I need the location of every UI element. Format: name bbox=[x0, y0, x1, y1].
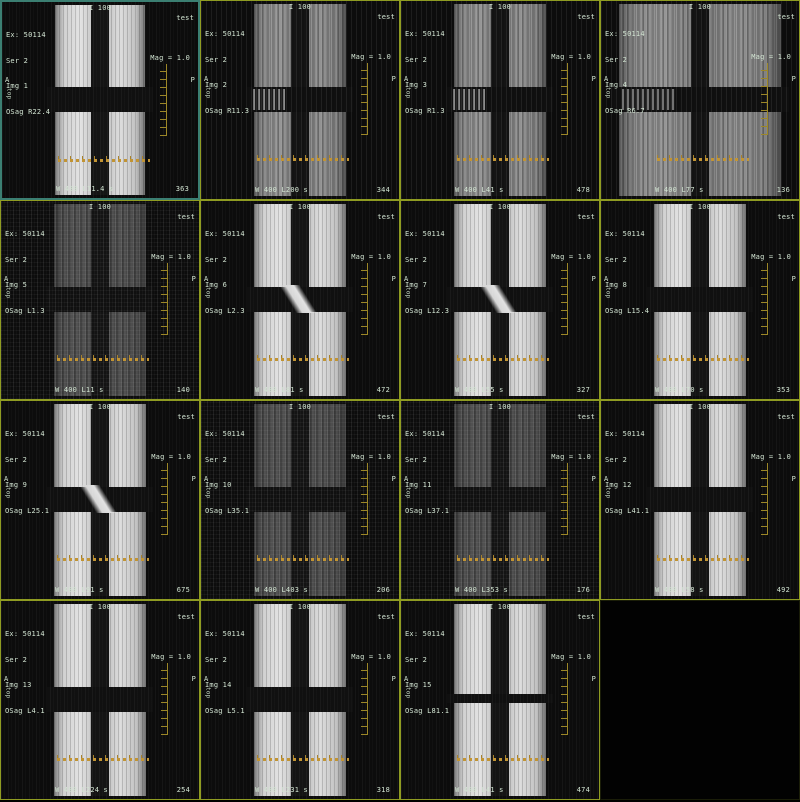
magnification-label: Mag = 1.0 bbox=[551, 453, 591, 462]
magnification-label: Mag = 1.0 bbox=[551, 253, 591, 262]
level-value-label: 363 bbox=[176, 185, 189, 194]
mri-panel[interactable]: Ex: 50114 Ser 2 Img 11 OSag L37.1 I 100 … bbox=[400, 400, 600, 600]
exam-info-block: Ex: 50114 Ser 2 Img 14 OSag L5.1 bbox=[205, 613, 245, 732]
level-value-label: 140 bbox=[177, 386, 190, 395]
magnification-label: Mag = 1.0 bbox=[151, 453, 191, 462]
vertical-ruler bbox=[761, 63, 768, 135]
image-number: Img 1 bbox=[6, 82, 50, 91]
series-number: Ser 2 bbox=[6, 57, 50, 66]
level-value-label: 474 bbox=[577, 786, 590, 795]
table-position-label: I 100 bbox=[689, 3, 711, 12]
magnification-label: Mag = 1.0 bbox=[751, 453, 791, 462]
vertical-ruler bbox=[160, 64, 167, 136]
exam-info-block: Ex: 50114 Ser 2 Img 9 OSag L25.1 bbox=[5, 413, 49, 532]
exam-info-block: Ex: 50114 Ser 2 Img 1 OSag R22.4 bbox=[6, 14, 50, 133]
level-value-label: 478 bbox=[577, 186, 590, 195]
mri-panel[interactable]: Ex: 50114 Ser 2 Img 4 OSag R6.7 I 100 te… bbox=[600, 0, 800, 200]
orientation-left-sub-label: top bbox=[203, 87, 212, 98]
level-value-label: 136 bbox=[777, 186, 790, 195]
exam-number: Ex: 50114 bbox=[205, 630, 245, 639]
orientation-left-marker: A bbox=[604, 475, 608, 484]
orientation-right-marker: P bbox=[192, 675, 196, 684]
horizontal-ruler bbox=[58, 159, 150, 162]
image-number: Img 2 bbox=[205, 81, 249, 90]
series-number: Ser 2 bbox=[205, 456, 249, 465]
table-position-label: I 100 bbox=[289, 603, 311, 612]
orientation-right-marker: P bbox=[392, 675, 396, 684]
orientation-left-marker: A bbox=[204, 275, 208, 284]
magnification-label: Mag = 1.0 bbox=[151, 253, 191, 262]
horizontal-ruler bbox=[257, 158, 349, 161]
slice-location: OSag L81.1 bbox=[405, 707, 449, 716]
orientation-right-marker: P bbox=[392, 275, 396, 284]
orientation-right-marker: P bbox=[592, 75, 596, 84]
slice-location: OSag L15.4 bbox=[605, 307, 649, 316]
orientation-left-sub-label: top bbox=[3, 487, 12, 498]
mri-panel[interactable]: Ex: 50114 Ser 2 Img 1 OSag R22.4 I 100 t… bbox=[0, 0, 200, 200]
mri-panel[interactable]: Ex: 50114 Ser 2 Img 7 OSag L12.3 I 100 t… bbox=[400, 200, 600, 400]
level-value-label: 176 bbox=[577, 586, 590, 595]
orientation-right-marker: P bbox=[592, 475, 596, 484]
orientation-right-marker: P bbox=[191, 76, 195, 85]
magnification-label: Mag = 1.0 bbox=[151, 653, 191, 662]
orientation-right-marker: P bbox=[192, 475, 196, 484]
orientation-right-marker: P bbox=[792, 275, 796, 284]
exam-number: Ex: 50114 bbox=[5, 230, 45, 239]
vertical-ruler bbox=[361, 463, 368, 535]
orientation-left-marker: A bbox=[5, 76, 9, 85]
image-number: Img 9 bbox=[5, 481, 49, 490]
orientation-right-marker: P bbox=[792, 475, 796, 484]
orientation-left-sub-label: top bbox=[603, 287, 612, 298]
window-level-label: W 400 L41 s bbox=[455, 186, 504, 195]
orientation-left-marker: A bbox=[604, 75, 608, 84]
mri-panel[interactable]: Ex: 50114 Ser 2 Img 10 OSag L35.1 I 100 … bbox=[200, 400, 400, 600]
vertical-ruler bbox=[761, 263, 768, 335]
horizontal-ruler bbox=[57, 758, 149, 761]
exam-number: Ex: 50114 bbox=[5, 430, 49, 439]
image-number: Img 8 bbox=[605, 281, 649, 290]
orientation-left-marker: A bbox=[204, 75, 208, 84]
image-number: Img 12 bbox=[605, 481, 649, 490]
image-number: Img 10 bbox=[205, 481, 249, 490]
exam-number: Ex: 50114 bbox=[605, 230, 649, 239]
level-value-label: 353 bbox=[777, 386, 790, 395]
horizontal-ruler bbox=[657, 158, 749, 161]
magnification-label: Mag = 1.0 bbox=[551, 653, 591, 662]
horizontal-ruler bbox=[57, 558, 149, 561]
mri-panel[interactable]: Ex: 50114 Ser 2 Img 3 OSag R1.3 I 100 te… bbox=[400, 0, 600, 200]
exam-number: Ex: 50114 bbox=[5, 630, 45, 639]
exam-number: Ex: 50114 bbox=[405, 430, 449, 439]
window-level-label: W 400 L41 s bbox=[455, 786, 504, 795]
patient-name-label: test bbox=[377, 613, 395, 622]
level-value-label: 206 bbox=[377, 586, 390, 595]
series-number: Ser 2 bbox=[405, 456, 449, 465]
slice-location: OSag L37.1 bbox=[405, 507, 449, 516]
vertical-ruler bbox=[561, 63, 568, 135]
exam-info-block: Ex: 50114 Ser 2 Img 3 OSag R1.3 bbox=[405, 13, 445, 132]
level-value-label: 675 bbox=[177, 586, 190, 595]
series-number: Ser 2 bbox=[405, 656, 449, 665]
orientation-left-marker: A bbox=[4, 675, 8, 684]
horizontal-ruler bbox=[657, 558, 749, 561]
slice-location: OSag L5.1 bbox=[205, 707, 245, 716]
magnification-label: Mag = 1.0 bbox=[150, 54, 190, 63]
window-level-label: W 400 L11 s bbox=[55, 386, 104, 395]
slice-location: OSag R22.4 bbox=[6, 108, 50, 117]
exam-info-block: Ex: 50114 Ser 2 Img 2 OSag R11.3 bbox=[205, 13, 249, 132]
patient-name-label: test bbox=[577, 213, 595, 222]
window-level-label: W 400 L231 s bbox=[255, 786, 308, 795]
slice-location: OSag L2.3 bbox=[205, 307, 245, 316]
mri-panel[interactable]: Ex: 50114 Ser 2 Img 6 OSag L2.3 I 100 te… bbox=[200, 200, 400, 400]
magnification-label: Mag = 1.0 bbox=[351, 453, 391, 462]
series-number: Ser 2 bbox=[5, 656, 45, 665]
window-level-label: W 400 L224 s bbox=[55, 786, 108, 795]
orientation-right-marker: P bbox=[592, 675, 596, 684]
series-number: Ser 2 bbox=[5, 256, 45, 265]
exam-info-block: Ex: 50114 Ser 2 Img 6 OSag L2.3 bbox=[205, 213, 245, 332]
series-number: Ser 2 bbox=[5, 456, 49, 465]
orientation-right-marker: P bbox=[192, 275, 196, 284]
table-position-label: I 100 bbox=[89, 403, 111, 412]
exam-info-block: Ex: 50114 Ser 2 Img 12 OSag L41.1 bbox=[605, 413, 649, 532]
table-position-label: I 100 bbox=[489, 203, 511, 212]
exam-number: Ex: 50114 bbox=[605, 430, 649, 439]
orientation-left-sub-label: top bbox=[603, 87, 612, 98]
slice-location: OSag L35.1 bbox=[205, 507, 249, 516]
horizontal-ruler bbox=[457, 758, 549, 761]
vertical-ruler bbox=[161, 663, 168, 735]
window-level-label: W 400 L70 s bbox=[655, 386, 704, 395]
patient-name-label: test bbox=[577, 13, 595, 22]
exam-info-block: Ex: 50114 Ser 2 Img 4 OSag R6.7 bbox=[605, 13, 645, 132]
vertical-ruler bbox=[161, 463, 168, 535]
vertical-ruler bbox=[561, 463, 568, 535]
mri-panel[interactable]: Ex: 50114 Ser 2 Img 15 OSag L81.1 I 100 … bbox=[400, 600, 600, 800]
orientation-right-marker: P bbox=[392, 475, 396, 484]
orientation-left-sub-label: top bbox=[603, 487, 612, 498]
table-position-label: I 100 bbox=[289, 3, 311, 12]
orientation-left-sub-label: top bbox=[3, 687, 12, 698]
image-number: Img 15 bbox=[405, 681, 449, 690]
level-value-label: 327 bbox=[577, 386, 590, 395]
magnification-label: Mag = 1.0 bbox=[751, 253, 791, 262]
exam-info-block: Ex: 50114 Ser 2 Img 13 OSag L4.1 bbox=[5, 613, 45, 732]
table-position-label: I 100 bbox=[689, 203, 711, 212]
empty-cell bbox=[600, 600, 800, 800]
slice-location: OSag L12.3 bbox=[405, 307, 449, 316]
exam-number: Ex: 50114 bbox=[205, 230, 245, 239]
exam-info-block: Ex: 50114 Ser 2 Img 8 OSag L15.4 bbox=[605, 213, 649, 332]
slice-location: OSag R11.3 bbox=[205, 107, 249, 116]
patient-name-label: test bbox=[777, 213, 795, 222]
horizontal-ruler bbox=[57, 358, 149, 361]
image-number: Img 11 bbox=[405, 481, 449, 490]
orientation-left-marker: A bbox=[404, 275, 408, 284]
magnification-label: Mag = 1.0 bbox=[351, 253, 391, 262]
vertical-ruler bbox=[161, 263, 168, 335]
window-level-label: W 400 L55 s bbox=[455, 386, 504, 395]
orientation-left-sub-label: top bbox=[203, 287, 212, 298]
orientation-left-sub-label: top bbox=[3, 287, 12, 298]
exam-info-block: Ex: 50114 Ser 2 Img 7 OSag L12.3 bbox=[405, 213, 449, 332]
table-position-label: I 100 bbox=[289, 403, 311, 412]
orientation-left-marker: A bbox=[204, 675, 208, 684]
slice-location: OSag R1.3 bbox=[405, 107, 445, 116]
exam-number: Ex: 50114 bbox=[205, 30, 249, 39]
level-value-label: 254 bbox=[177, 786, 190, 795]
slice-location: OSag L25.1 bbox=[5, 507, 49, 516]
window-level-label: W 400 L200 s bbox=[255, 186, 308, 195]
series-number: Ser 2 bbox=[605, 256, 649, 265]
orientation-left-marker: A bbox=[604, 275, 608, 284]
exam-info-block: Ex: 50114 Ser 2 Img 5 OSag L1.3 bbox=[5, 213, 45, 332]
level-value-label: 492 bbox=[777, 586, 790, 595]
series-number: Ser 2 bbox=[605, 456, 649, 465]
patient-name-label: test bbox=[777, 413, 795, 422]
mri-panel[interactable]: Ex: 50114 Ser 2 Img 5 OSag L1.3 I 100 te… bbox=[0, 200, 200, 400]
series-number: Ser 2 bbox=[405, 256, 449, 265]
window-level-label: W 400 L11.4 s bbox=[56, 185, 113, 194]
table-position-label: I 100 bbox=[489, 603, 511, 612]
patient-name-label: test bbox=[176, 14, 194, 23]
patient-name-label: test bbox=[177, 413, 195, 422]
orientation-right-marker: P bbox=[792, 75, 796, 84]
mri-panel[interactable]: Ex: 50114 Ser 2 Img 9 OSag L25.1 I 100 t… bbox=[0, 400, 200, 600]
horizontal-ruler bbox=[457, 558, 549, 561]
level-value-label: 344 bbox=[377, 186, 390, 195]
horizontal-ruler bbox=[257, 358, 349, 361]
image-grid: Ex: 50114 Ser 2 Img 1 OSag R22.4 I 100 t… bbox=[0, 0, 800, 800]
magnification-label: Mag = 1.0 bbox=[351, 653, 391, 662]
orientation-left-sub-label: top bbox=[403, 287, 412, 298]
slice-location: OSag L1.3 bbox=[5, 307, 45, 316]
table-position-label: I 100 bbox=[289, 203, 311, 212]
image-number: Img 7 bbox=[405, 281, 449, 290]
table-position-label: I 100 bbox=[489, 403, 511, 412]
window-level-label: W 400 L403 s bbox=[255, 586, 308, 595]
orientation-left-marker: A bbox=[404, 75, 408, 84]
slice-location: OSag R6.7 bbox=[605, 107, 645, 116]
orientation-left-sub-label: top bbox=[203, 487, 212, 498]
patient-name-label: test bbox=[377, 413, 395, 422]
window-level-label: W 400 L58 s bbox=[655, 586, 704, 595]
orientation-left-marker: A bbox=[404, 475, 408, 484]
window-level-label: W 400 L77 s bbox=[655, 186, 704, 195]
series-number: Ser 2 bbox=[205, 256, 245, 265]
level-value-label: 318 bbox=[377, 786, 390, 795]
horizontal-ruler bbox=[657, 358, 749, 361]
vertical-ruler bbox=[361, 63, 368, 135]
vertical-ruler bbox=[561, 663, 568, 735]
exam-number: Ex: 50114 bbox=[405, 30, 445, 39]
orientation-left-marker: A bbox=[4, 275, 8, 284]
mri-panel[interactable]: Ex: 50114 Ser 2 Img 8 OSag L15.4 I 100 t… bbox=[600, 200, 800, 400]
orientation-left-marker: A bbox=[204, 475, 208, 484]
orientation-left-marker: A bbox=[404, 675, 408, 684]
orientation-left-sub-label: top bbox=[403, 487, 412, 498]
slice-location: OSag L4.1 bbox=[5, 707, 45, 716]
vertical-ruler bbox=[761, 463, 768, 535]
slice-location: OSag L41.1 bbox=[605, 507, 649, 516]
magnification-label: Mag = 1.0 bbox=[551, 53, 591, 62]
window-level-label: W 400 L91 s bbox=[55, 586, 104, 595]
mri-panel[interactable]: Ex: 50114 Ser 2 Img 14 OSag L5.1 I 100 t… bbox=[200, 600, 400, 800]
mri-panel[interactable]: Ex: 50114 Ser 2 Img 2 OSag R11.3 I 100 t… bbox=[200, 0, 400, 200]
series-number: Ser 2 bbox=[205, 656, 245, 665]
patient-name-label: test bbox=[577, 613, 595, 622]
patient-name-label: test bbox=[777, 13, 795, 22]
table-position-label: I 100 bbox=[89, 4, 111, 13]
orientation-left-sub-label: top bbox=[403, 687, 412, 698]
level-value-label: 472 bbox=[377, 386, 390, 395]
series-number: Ser 2 bbox=[605, 56, 645, 65]
orientation-right-marker: P bbox=[392, 75, 396, 84]
orientation-left-sub-label: top bbox=[403, 87, 412, 98]
horizontal-ruler bbox=[257, 758, 349, 761]
series-number: Ser 2 bbox=[405, 56, 445, 65]
table-position-label: I 100 bbox=[489, 3, 511, 12]
series-number: Ser 2 bbox=[205, 56, 249, 65]
orientation-right-marker: P bbox=[592, 275, 596, 284]
patient-name-label: test bbox=[377, 213, 395, 222]
exam-number: Ex: 50114 bbox=[605, 30, 645, 39]
magnification-label: Mag = 1.0 bbox=[351, 53, 391, 62]
table-position-label: I 100 bbox=[89, 203, 111, 212]
table-position-label: I 100 bbox=[689, 403, 711, 412]
vertical-ruler bbox=[561, 263, 568, 335]
vertical-ruler bbox=[361, 663, 368, 735]
patient-name-label: test bbox=[377, 13, 395, 22]
horizontal-ruler bbox=[257, 558, 349, 561]
horizontal-ruler bbox=[457, 158, 549, 161]
exam-info-block: Ex: 50114 Ser 2 Img 10 OSag L35.1 bbox=[205, 413, 249, 532]
orientation-left-marker: A bbox=[4, 475, 8, 484]
window-level-label: W 400 L81 s bbox=[255, 386, 304, 395]
patient-name-label: test bbox=[577, 413, 595, 422]
exam-number: Ex: 50114 bbox=[405, 630, 449, 639]
patient-name-label: test bbox=[177, 613, 195, 622]
exam-number: Ex: 50114 bbox=[6, 31, 50, 40]
exam-number: Ex: 50114 bbox=[405, 230, 449, 239]
patient-name-label: test bbox=[177, 213, 195, 222]
orientation-left-sub-label: top bbox=[203, 687, 212, 698]
orientation-left-sub-label: top bbox=[4, 88, 13, 99]
vertical-ruler bbox=[361, 263, 368, 335]
table-position-label: I 100 bbox=[89, 603, 111, 612]
window-level-label: W 400 L353 s bbox=[455, 586, 508, 595]
mri-panel[interactable]: Ex: 50114 Ser 2 Img 13 OSag L4.1 I 100 t… bbox=[0, 600, 200, 800]
magnification-label: Mag = 1.0 bbox=[751, 53, 791, 62]
mri-panel[interactable]: Ex: 50114 Ser 2 Img 12 OSag L41.1 I 100 … bbox=[600, 400, 800, 600]
exam-info-block: Ex: 50114 Ser 2 Img 15 OSag L81.1 bbox=[405, 613, 449, 732]
horizontal-ruler bbox=[457, 358, 549, 361]
exam-number: Ex: 50114 bbox=[205, 430, 249, 439]
exam-info-block: Ex: 50114 Ser 2 Img 11 OSag L37.1 bbox=[405, 413, 449, 532]
